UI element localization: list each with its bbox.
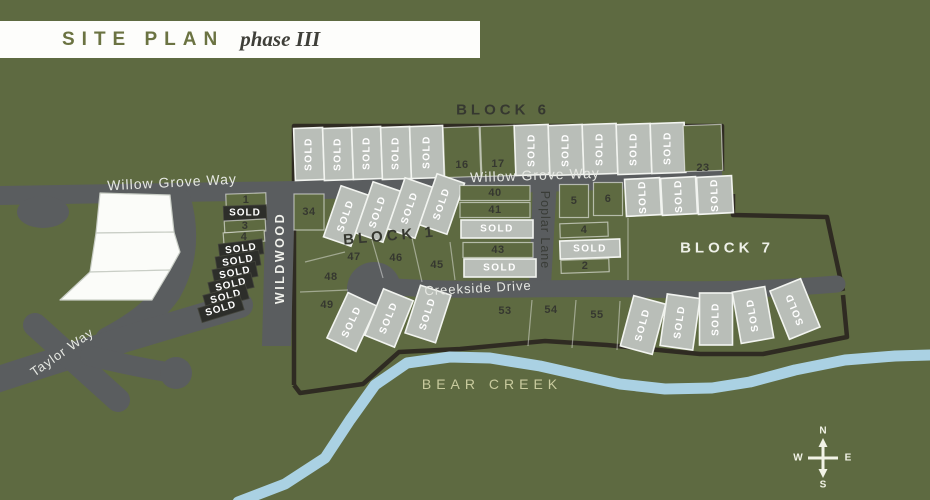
- sold-label: SOLD: [333, 137, 344, 171]
- lot-55: 55: [590, 309, 603, 321]
- block-6-label: BLOCK 6: [456, 102, 550, 119]
- lot-number: 5: [571, 195, 578, 207]
- compass-e: E: [845, 453, 852, 464]
- lot-number: 43: [491, 244, 504, 256]
- lot-number: 49: [320, 299, 333, 311]
- lot-number: 34: [302, 206, 316, 218]
- sold-lot: SOLD: [410, 125, 445, 178]
- sold-lot: SOLD: [352, 127, 383, 180]
- sold-label: SOLD: [637, 180, 649, 214]
- bear-creek-label: BEAR CREEK: [422, 376, 562, 392]
- sold-label: SOLD: [229, 208, 261, 219]
- lot-number: 53: [498, 305, 511, 317]
- sold-lot: SOLD: [560, 239, 621, 259]
- lot-6: 6: [594, 183, 623, 216]
- lot-40: 40: [460, 186, 530, 201]
- sold-lot: SOLD: [464, 259, 536, 277]
- sold-label: SOLD: [391, 136, 402, 170]
- lot-number: 16: [455, 159, 468, 171]
- wildwood-label: WILDWOOD: [273, 212, 287, 304]
- road-knob: [17, 196, 69, 228]
- lot-54: 54: [544, 304, 558, 316]
- sold-lot: SOLD: [294, 128, 325, 181]
- sold-label: SOLD: [711, 302, 722, 336]
- lot-34: 34: [294, 194, 324, 230]
- lot-2: 2: [561, 259, 609, 274]
- sold-label: SOLD: [527, 133, 538, 167]
- sold-lot: SOLD: [661, 177, 698, 216]
- lot-number: 6: [605, 193, 612, 205]
- sold-lot: SOLD: [697, 176, 734, 215]
- lot-number: 1: [243, 194, 250, 206]
- lot-49: 49: [320, 299, 333, 311]
- sold-label: SOLD: [362, 136, 373, 170]
- sold-label: SOLD: [663, 131, 674, 165]
- lot-46: 46: [389, 252, 402, 264]
- lot-53: 53: [498, 305, 511, 317]
- site-plan-map: SOLDSOLDSOLDSOLDSOLD1617SOLDSOLDSOLDSOLD…: [0, 0, 930, 500]
- compass-n: N: [819, 426, 826, 437]
- lot-number: 54: [544, 304, 558, 316]
- poplar-lane-label: Poplar Lane: [538, 191, 552, 269]
- sold-lot: SOLD: [625, 178, 662, 217]
- sold-label: SOLD: [304, 137, 315, 171]
- lot-number: 2: [582, 260, 589, 272]
- sold-lot: SOLD: [461, 220, 533, 238]
- sold-label: SOLD: [483, 263, 517, 274]
- sold-label: SOLD: [561, 133, 572, 167]
- lot-number: 45: [430, 259, 443, 271]
- lot-number: 47: [347, 251, 360, 263]
- compass-s: S: [820, 480, 827, 491]
- sold-lot: SOLD: [323, 128, 354, 181]
- lot-41: 41: [460, 203, 530, 218]
- compass-w: W: [793, 453, 803, 464]
- site-plan-svg: SOLDSOLDSOLDSOLDSOLD1617SOLDSOLDSOLDSOLD…: [0, 0, 930, 500]
- sold-lot: SOLD: [700, 293, 733, 345]
- white-lot: [90, 232, 180, 272]
- lot-number: 55: [590, 309, 603, 321]
- lot-5: 5: [560, 185, 589, 218]
- lot-number: 41: [488, 204, 501, 216]
- title-band: SITE PLAN phase III: [0, 21, 480, 58]
- sold-label: SOLD: [629, 132, 640, 166]
- lot-45: 45: [430, 259, 443, 271]
- site-plan-title: SITE PLAN: [62, 29, 224, 51]
- road-culdesac: [160, 357, 192, 389]
- lot-43: 43: [463, 243, 533, 258]
- lot-23: 23: [683, 124, 723, 174]
- sold-lot: SOLD: [650, 122, 686, 173]
- lot-48: 48: [324, 271, 337, 283]
- sold-lot: SOLD: [616, 123, 652, 174]
- lot-47: 47: [347, 251, 360, 263]
- sold-lot: SOLD: [381, 127, 412, 180]
- sold-lot: SOLD: [660, 294, 700, 350]
- lot-number: 48: [324, 271, 337, 283]
- lot-number: 40: [488, 187, 501, 199]
- sold-label: SOLD: [573, 244, 607, 255]
- block-7-label: BLOCK 7: [680, 240, 774, 257]
- lot-number: 46: [389, 252, 402, 264]
- white-lot: [96, 193, 174, 233]
- sold-label: SOLD: [595, 132, 606, 166]
- lot-number: 23: [696, 162, 709, 174]
- lot-4: 4: [560, 222, 608, 238]
- sold-label: SOLD: [709, 178, 721, 212]
- lot-number: 4: [581, 224, 588, 236]
- sold-label: SOLD: [673, 179, 685, 213]
- sold-label: SOLD: [422, 135, 433, 169]
- sold-label: SOLD: [480, 224, 514, 235]
- phase-label: phase III: [240, 27, 320, 52]
